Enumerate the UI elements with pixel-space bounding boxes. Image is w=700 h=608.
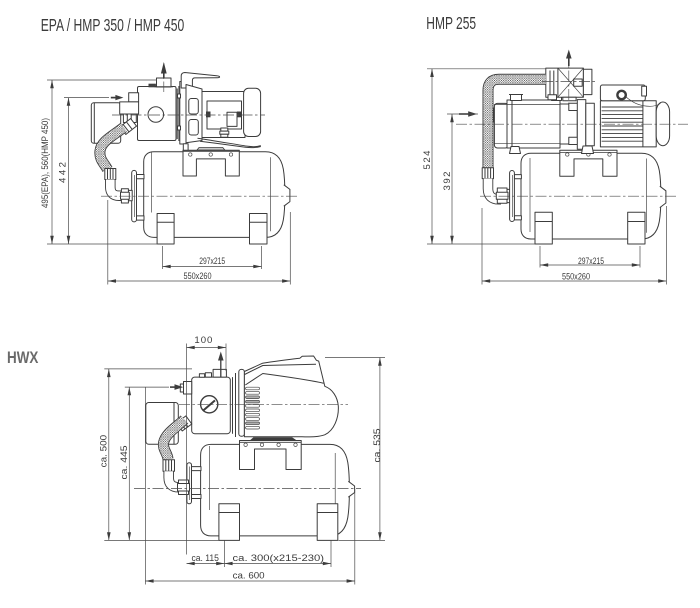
svg-text:550x260: 550x260 (184, 271, 212, 282)
svg-text:392: 392 (442, 172, 453, 191)
svg-text:495(EPA), 560(HMP 450): 495(EPA), 560(HMP 450) (40, 118, 51, 208)
svg-text:297x215: 297x215 (199, 256, 225, 267)
svg-text:100: 100 (194, 335, 212, 346)
svg-text:HWX: HWX (7, 349, 39, 368)
svg-text:297x215: 297x215 (578, 256, 604, 267)
svg-text:ca. 500: ca. 500 (99, 435, 110, 468)
svg-text:ca. 535: ca. 535 (372, 429, 383, 463)
svg-text:HMP 255: HMP 255 (426, 15, 476, 34)
svg-text:550x260: 550x260 (562, 271, 590, 282)
svg-text:ca. 445: ca. 445 (119, 446, 130, 480)
svg-text:ca. 300(x215-230): ca. 300(x215-230) (233, 553, 325, 564)
svg-text:524: 524 (422, 150, 433, 170)
svg-text:EPA / HMP 350 / HMP 450: EPA / HMP 350 / HMP 450 (41, 17, 185, 36)
svg-text:442: 442 (58, 162, 69, 183)
svg-text:ca. 600: ca. 600 (233, 571, 265, 582)
svg-text:ca. 115: ca. 115 (191, 553, 219, 564)
